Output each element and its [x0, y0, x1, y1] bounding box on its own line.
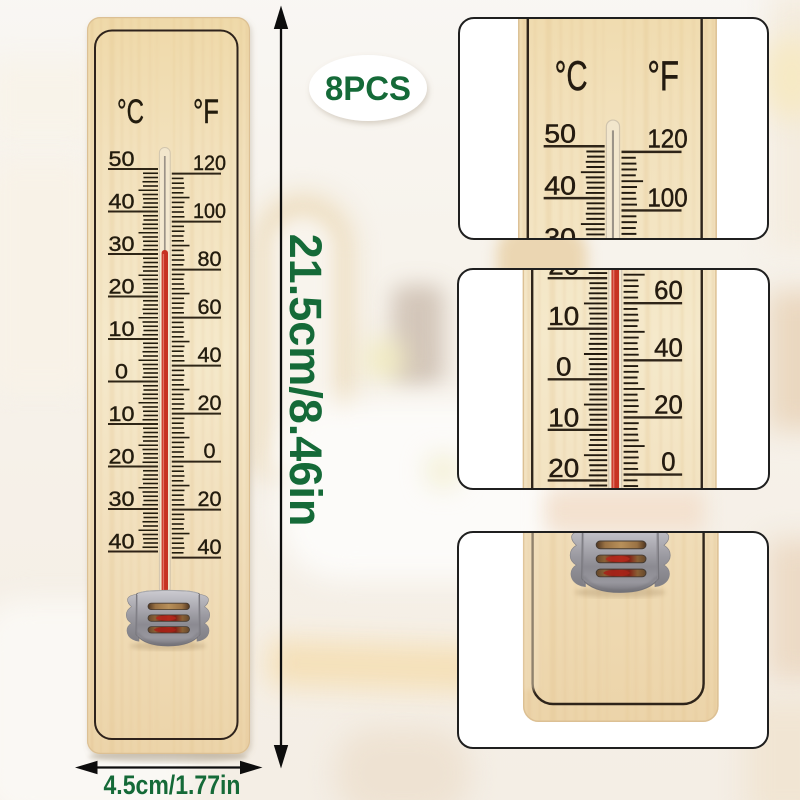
svg-text:8PCS: 8PCS	[325, 70, 411, 108]
svg-text:4.5cm/1.77in: 4.5cm/1.77in	[104, 770, 241, 800]
svg-text:21.5cm/8.46in: 21.5cm/8.46in	[280, 234, 331, 527]
